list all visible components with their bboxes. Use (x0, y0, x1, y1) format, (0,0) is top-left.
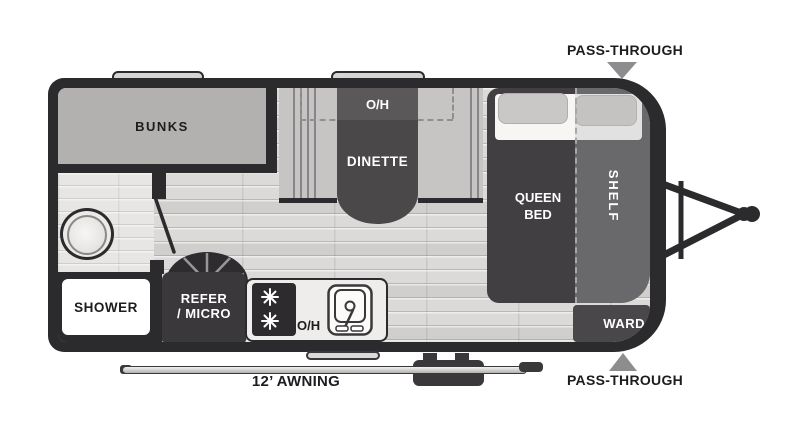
bunks-area: BUNKS (58, 88, 277, 173)
toilet-icon (60, 208, 114, 260)
ward-label: WARD (603, 316, 645, 331)
refer-label-line1: REFER (181, 292, 228, 307)
shower-label: SHOWER (74, 300, 138, 315)
queen-bed-label: QUEEN BED (508, 190, 568, 224)
refrigerator-microwave-area: REFER / MICRO (162, 272, 246, 342)
shelf-label: SHELF (606, 169, 621, 222)
shower-area: SHOWER (60, 277, 152, 337)
wardrobe-area: WARD (573, 305, 650, 342)
entry-threshold (306, 351, 380, 360)
dinette-overhead-label: O/H (366, 97, 389, 112)
pillow-icon (498, 93, 568, 124)
kitchen-counter: O/H (245, 278, 388, 342)
floorplan-canvas: BUNKS SHOWER (0, 0, 800, 446)
sink-icon (327, 284, 373, 336)
pass-through-label-top: PASS-THROUGH (545, 42, 705, 58)
arrow-up-icon (609, 353, 637, 371)
awning-label: 12’ AWNING (222, 373, 370, 390)
dinette-bench-right (418, 88, 483, 203)
shower-surround: SHOWER (58, 272, 162, 342)
dinette-table: O/H DINETTE (337, 88, 418, 224)
dinette-bench-left (279, 88, 337, 203)
awning-end-cap (519, 362, 543, 372)
dinette-overhead-cabinet: O/H (337, 88, 418, 120)
stove-icon (252, 283, 296, 336)
refer-label-line2: / MICRO (177, 307, 231, 322)
bench-cushion-lines (470, 88, 483, 198)
hitch-icon (648, 130, 768, 300)
bunks-label: BUNKS (135, 119, 189, 134)
burner-icon (261, 312, 279, 330)
overhead-cabinet-outline (452, 88, 454, 119)
pass-through-label-bottom: PASS-THROUGH (545, 372, 705, 388)
shelf-area: SHELF (575, 88, 650, 303)
door-swing-icon (152, 194, 182, 256)
burner-icon (261, 288, 279, 306)
trailer-body: BUNKS SHOWER (48, 78, 666, 352)
arrow-down-icon (607, 62, 637, 79)
bench-cushion-lines (293, 88, 318, 198)
trailer-interior: BUNKS SHOWER (58, 88, 650, 342)
kitchen-overhead-label: O/H (297, 318, 320, 333)
queen-bed-area: QUEEN BED SHELF (487, 88, 650, 303)
dinette-label: DINETTE (337, 154, 418, 169)
overhead-cabinet-outline (300, 88, 302, 119)
